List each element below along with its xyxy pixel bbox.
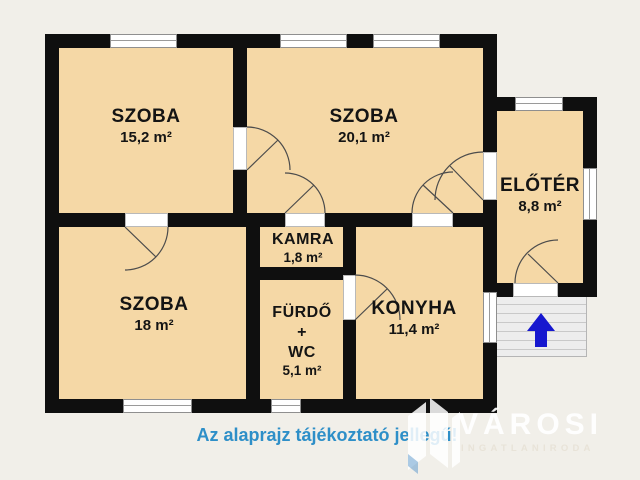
room-label-szoba2: SZOBA 20,1 m² [284,105,444,148]
room-name: KONYHA [371,297,456,321]
room-name-wc: WC [288,343,316,363]
room-area: 5,1 m² [282,363,321,380]
up-arrow-icon [527,313,555,347]
room-label-kamra: KAMRA 1,8 m² [243,230,363,267]
room-label-szoba3: SZOBA 18 m² [74,293,234,336]
room-name: FÜRDŐ [272,303,331,323]
room-label-konyha: KONYHA 11,4 m² [334,297,494,340]
door-leaf [528,254,558,283]
brand-logo-text: VÁROSI [458,408,603,442]
room-area: 18 m² [134,317,173,336]
room-name: SZOBA [112,105,181,129]
room-name-plus: + [297,323,307,343]
room-name: SZOBA [120,293,189,317]
brand-logo-subtitle: INGATLANIRODA [461,443,595,454]
room-name: SZOBA [330,105,399,129]
floor-plan: SZOBA 15,2 m² SZOBA 20,1 m² ELŐTÉR 8,8 m… [0,0,640,480]
room-area: 20,1 m² [338,129,390,148]
room-label-szoba1: SZOBA 15,2 m² [66,105,226,148]
room-name: ELŐTÉR [500,174,580,198]
room-area: 8,8 m² [518,198,561,217]
room-area: 1,8 m² [283,250,322,267]
door-leaf [125,227,156,257]
room-name: KAMRA [272,230,334,250]
room-label-eloter: ELŐTÉR 8,8 m² [480,174,600,217]
door-leaf [285,185,314,213]
room-area: 15,2 m² [120,129,172,148]
room-area: 11,4 m² [389,321,440,340]
door-leaf [423,185,453,213]
door-leaf [450,166,483,200]
door-leaf [247,140,278,170]
buildings-icon [405,396,461,476]
